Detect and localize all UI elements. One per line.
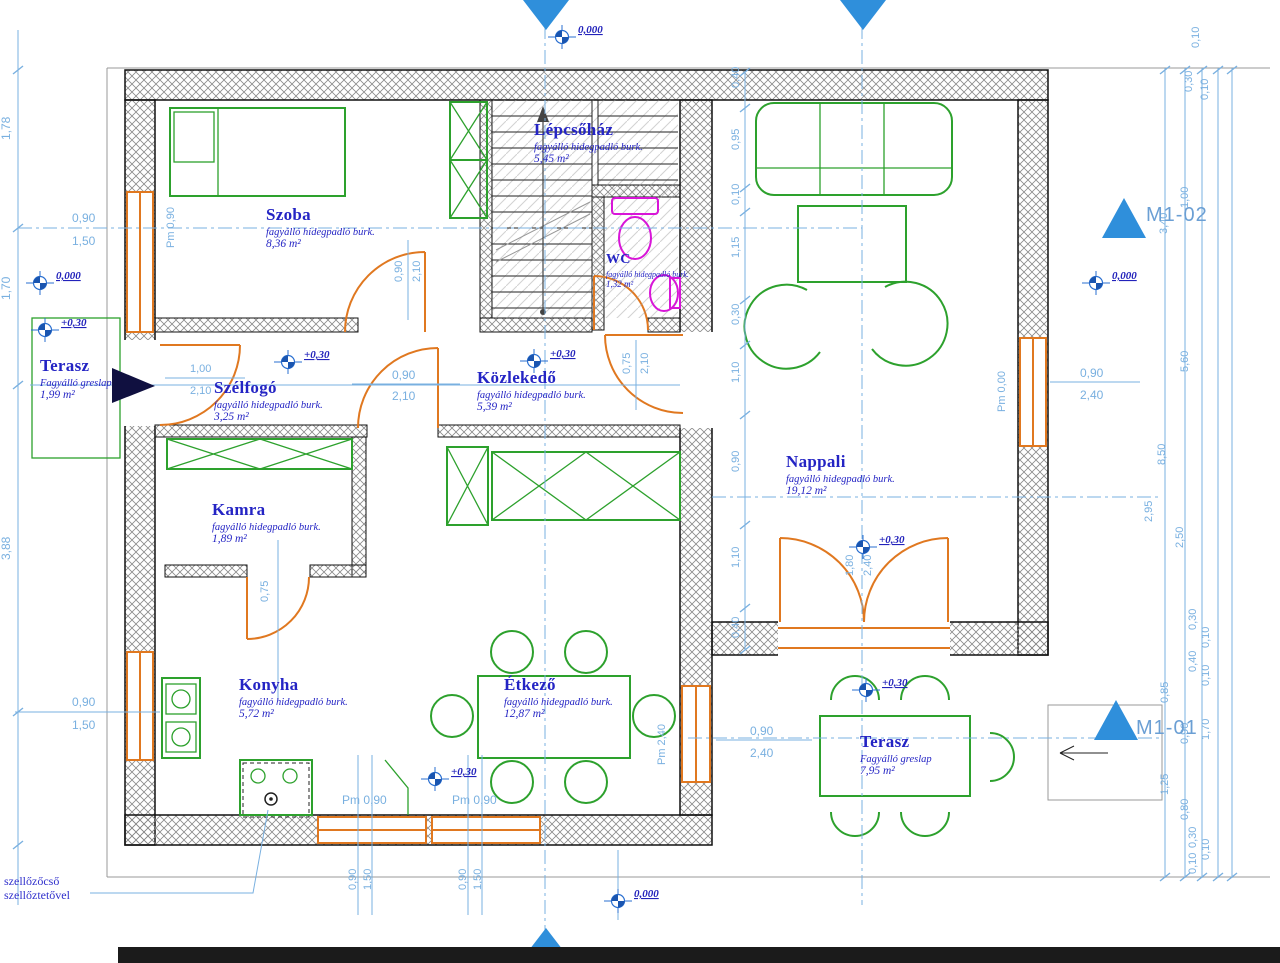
dim-label: 0,40	[1187, 651, 1199, 672]
vent-note: szellőzőcső szellőztetővel	[4, 874, 70, 903]
dim-label: 0,90	[393, 261, 405, 282]
section-triangle-m101	[1094, 700, 1138, 740]
elevation-label: +0,30	[61, 317, 87, 329]
dim-label: Pm 0,00	[996, 371, 1008, 412]
room-name: Terasz	[40, 356, 112, 376]
vent-note-line1: szellőzőcső	[4, 874, 70, 888]
room-area: 8,36 m²	[266, 238, 375, 250]
dim-label: 1,00	[190, 363, 211, 375]
room-name: Szélfogó	[214, 378, 323, 398]
room-finish: fagyálló hidegpadló burk.	[239, 697, 348, 708]
dim-label: Pm 2,40	[656, 724, 668, 765]
dim-label: 2,10	[392, 389, 416, 403]
elevation-label: 0,000	[56, 270, 81, 282]
dim-label: 0,10	[1190, 27, 1202, 48]
room-finish: fagyálló hidegpadló burk.	[214, 400, 323, 411]
dim-label: 0,95	[730, 129, 742, 150]
elevation-label: +0,30	[879, 534, 905, 546]
dim-label: 1,50	[72, 718, 96, 732]
room-area: 1,99 m²	[40, 389, 112, 401]
room-area: 19,12 m²	[786, 485, 895, 497]
room-name: Lépcsőház	[534, 120, 643, 140]
room-area: 5,72 m²	[239, 708, 348, 720]
elevation-label: +0,30	[451, 766, 477, 778]
dim-label: 1,50	[472, 869, 484, 890]
elevation-label: +0,30	[882, 677, 908, 689]
dim-label: 1,50	[72, 234, 96, 248]
room-label-szoba: Szoba fagyálló hidegpadló burk. 8,36 m²	[266, 205, 375, 250]
dim-label: 0,40	[730, 67, 742, 88]
dim-label: 8,50	[1156, 444, 1168, 465]
elevation-label: +0,30	[550, 348, 576, 360]
dim-label: 2,10	[639, 353, 651, 374]
room-label-terasz-left: Terasz Fagyálló greslap 1,99 m²	[40, 356, 112, 401]
dim-label: 2,40	[1080, 388, 1104, 402]
room-name: Nappali	[786, 452, 895, 472]
room-finish: fagyálló hidegpadló burk.	[606, 270, 690, 279]
dim-label: 2,95	[1143, 501, 1155, 522]
room-label-kamra: Kamra fagyálló hidegpadló burk. 1,89 m²	[212, 500, 321, 545]
dim-label: 0,30	[1187, 827, 1199, 848]
dim-label: 0,75	[621, 353, 633, 374]
dim-label: 2,10	[411, 261, 423, 282]
room-name: Konyha	[239, 675, 348, 695]
vent-note-line2: szellőztetővel	[4, 888, 70, 902]
dim-label: 1,10	[730, 362, 742, 383]
dim-label: 1,50	[362, 869, 374, 890]
dim-label: 0,30	[1187, 609, 1199, 630]
room-label-etkezo: Étkező fagyálló hidegpadló burk. 12,87 m…	[504, 675, 613, 720]
dim-label: Pm 0,90	[452, 793, 497, 807]
dim-label: Pm 0,90	[165, 207, 177, 248]
dim-label: 0,90	[72, 695, 96, 709]
room-finish: fagyálló hidegpadló burk.	[212, 522, 321, 533]
room-name: Étkező	[504, 675, 613, 695]
section-label-m101: M1-01	[1136, 717, 1198, 740]
room-label-wc: WC fagyálló hidegpadló burk. 1,32 m²	[606, 252, 690, 289]
section-triangle-m102	[1102, 198, 1146, 238]
elevation-label: 0,000	[634, 888, 659, 900]
section-flag-top-b	[840, 0, 886, 30]
room-area: 3,25 m²	[214, 411, 323, 423]
dim-label: 0,90	[457, 869, 469, 890]
room-area: 12,87 m²	[504, 708, 613, 720]
dim-label: 1,80	[844, 555, 856, 576]
room-area: 1,89 m²	[212, 533, 321, 545]
dim-label: 0,10	[1187, 853, 1199, 874]
room-finish: fagyálló hidegpadló burk.	[534, 142, 643, 153]
dim-label: 1,78	[0, 116, 13, 140]
room-name: Közlekedő	[477, 368, 586, 388]
dim-label: 0,10	[1200, 665, 1212, 686]
dim-label: Pm 0,90	[342, 793, 387, 807]
dim-label: 0,75	[259, 581, 271, 602]
room-name: Szoba	[266, 205, 375, 225]
dim-label: 1,70	[0, 276, 13, 300]
dim-label: 0,10	[1199, 79, 1211, 100]
dim-label: 0,40	[730, 617, 742, 638]
dim-label: 0,85	[1159, 682, 1171, 703]
dim-label: 0,90	[750, 724, 774, 738]
room-name: Terasz	[860, 732, 932, 752]
room-finish: Fagyálló greslap	[40, 378, 112, 389]
dim-label: 0,10	[1200, 627, 1212, 648]
elevation-label: +0,30	[304, 349, 330, 361]
room-finish: Fagyálló greslap	[860, 754, 932, 765]
floor-plan-canvas: 0,000 0,000 +0,30 +0,30 +0,30 +0,30 +0,3…	[0, 0, 1280, 963]
dim-label: 2,40	[750, 746, 774, 760]
dim-label: 0,90	[72, 211, 96, 225]
dim-label: 0,80	[1179, 799, 1191, 820]
dim-label: 0,10	[730, 184, 742, 205]
dim-label: 0,30	[1183, 71, 1195, 92]
dim-label: 1,70	[1200, 719, 1212, 740]
room-finish: fagyálló hidegpadló burk.	[786, 474, 895, 485]
dim-label: 0,90	[1080, 366, 1104, 380]
room-area: 5,45 m²	[534, 153, 643, 165]
dim-label: 0,90	[392, 368, 416, 382]
room-label-lepcsohaz: Lépcsőház fagyálló hidegpadló burk. 5,45…	[534, 120, 643, 165]
dim-label: 1,15	[730, 237, 742, 258]
room-area: 5,39 m²	[477, 401, 586, 413]
dim-label: 1,25	[1159, 774, 1171, 795]
dim-label: 0,90	[730, 451, 742, 472]
dim-label: 0,90	[347, 869, 359, 890]
room-name: Kamra	[212, 500, 321, 520]
room-area: 7,95 m²	[860, 765, 932, 777]
room-label-konyha: Konyha fagyálló hidegpadló burk. 5,72 m²	[239, 675, 348, 720]
dim-label: 5,60	[1179, 351, 1191, 372]
dim-label: 3,88	[0, 536, 13, 560]
elevation-label: 0,000	[1112, 270, 1137, 282]
room-label-terasz-br: Terasz Fagyálló greslap 7,95 m²	[860, 732, 932, 777]
room-area: 1,32 m²	[606, 279, 690, 289]
dim-label: 0,10	[1200, 839, 1212, 860]
bottom-bar	[118, 947, 1280, 963]
room-label-kozlekedo: Közlekedő fagyálló hidegpadló burk. 5,39…	[477, 368, 586, 413]
dim-label: 2,40	[862, 555, 874, 576]
elevation-label: 0,000	[578, 24, 603, 36]
dim-label: 2,10	[190, 385, 211, 397]
room-finish: fagyálló hidegpadló burk.	[266, 227, 375, 238]
room-finish: fagyálló hidegpadló burk.	[477, 390, 586, 401]
dim-label: 0,30	[730, 304, 742, 325]
room-finish: fagyálló hidegpadló burk.	[504, 697, 613, 708]
dim-label: 2,50	[1174, 527, 1186, 548]
room-name: WC	[606, 252, 690, 268]
section-label-m102: M1-02	[1146, 204, 1208, 227]
room-label-szelfogo: Szélfogó fagyálló hidegpadló burk. 3,25 …	[214, 378, 323, 423]
dim-label: 1,10	[730, 547, 742, 568]
room-label-nappali: Nappali fagyálló hidegpadló burk. 19,12 …	[786, 452, 895, 497]
